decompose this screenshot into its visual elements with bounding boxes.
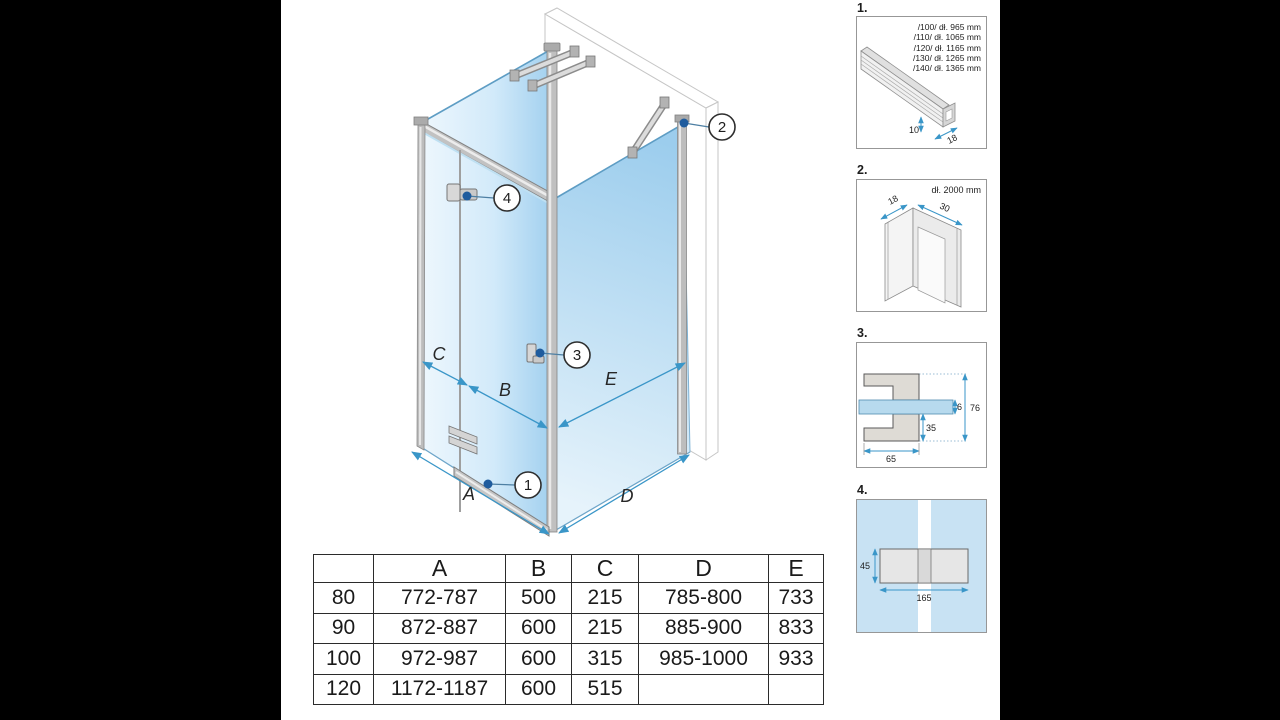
table-cell: 215 — [572, 613, 639, 644]
table-cell: 215 — [572, 583, 639, 614]
length-option: /140/ dł. 1365 mm — [913, 63, 981, 73]
table-cell — [639, 674, 769, 705]
table-row: 90872-887600215885-900833 — [314, 613, 824, 644]
table-cell: 772-787 — [374, 583, 506, 614]
detail-2-dim-b: 30 — [938, 201, 951, 214]
detail-4-dim-height: 45 — [860, 561, 870, 571]
table-cell: 972-987 — [374, 644, 506, 675]
detail-4-box: 45 165 — [856, 499, 987, 633]
table-cell: 985-1000 — [639, 644, 769, 675]
detail-1-length-list: /100/ dł. 965 mm /110/ dł. 1065 mm /120/… — [913, 22, 981, 73]
clamp-cross-section — [859, 374, 967, 441]
dim-label-d: D — [621, 486, 634, 506]
size-table-col-header: B — [506, 555, 572, 583]
detail-2-dim-a: 18 — [886, 193, 900, 207]
corner-wall-profile — [885, 208, 961, 307]
detail-2-drawing: 18 30 — [857, 180, 986, 311]
size-table-header: ABCDE — [314, 555, 824, 583]
table-cell: 1172-1187 — [374, 674, 506, 705]
detail-2-box: 18 30 dł. 2000 mm — [856, 179, 987, 312]
callout-4-number: 4 — [503, 190, 511, 207]
table-row: 100972-987600315985-1000933 — [314, 644, 824, 675]
table-cell: 600 — [506, 613, 572, 644]
callout-3-number: 3 — [573, 347, 581, 364]
callout-1-number: 1 — [524, 477, 532, 494]
table-cell: 515 — [572, 674, 639, 705]
size-table-col-header: C — [572, 555, 639, 583]
dim-label-a: A — [462, 484, 475, 504]
detail-4-dim-width: 165 — [916, 593, 931, 603]
table-cell: 833 — [769, 613, 824, 644]
size-table-col-header: D — [639, 555, 769, 583]
table-cell: 885-900 — [639, 613, 769, 644]
detail-3-box: 6 76 35 65 — [856, 342, 987, 468]
size-table-col-header — [314, 555, 374, 583]
size-table: ABCDE 80772-787500215785-80073390872-887… — [313, 554, 824, 705]
table-cell: 100 — [314, 644, 374, 675]
length-option: /110/ dł. 1065 mm — [913, 32, 981, 42]
detail-1-box: 10 18 /100/ dł. 965 mm /110/ dł. 1065 mm… — [856, 16, 987, 149]
table-cell: 500 — [506, 583, 572, 614]
detail-3-dim-lower: 35 — [926, 423, 936, 433]
hinge-face-view — [880, 549, 968, 583]
front-left-glass-panel — [421, 50, 552, 530]
table-cell: 600 — [506, 644, 572, 675]
detail-3-dim-total: 76 — [970, 403, 980, 413]
table-cell: 733 — [769, 583, 824, 614]
table-cell: 120 — [314, 674, 374, 705]
table-cell: 600 — [506, 674, 572, 705]
detail-1-label: 1. — [857, 1, 867, 15]
size-table-col-header: E — [769, 555, 824, 583]
length-option: /130/ dł. 1265 mm — [913, 53, 981, 63]
table-cell: 80 — [314, 583, 374, 614]
detail-2-label: 2. — [857, 163, 867, 177]
detail-4-drawing: 45 165 — [857, 500, 986, 632]
length-option: /120/ dł. 1165 mm — [913, 43, 981, 53]
size-table-col-header: A — [374, 555, 506, 583]
detail-1-dim-height: 10 — [909, 125, 919, 135]
detail-1-dim-depth: 18 — [945, 132, 958, 145]
table-cell: 933 — [769, 644, 824, 675]
length-option: /100/ dł. 965 mm — [913, 22, 981, 32]
table-cell: 315 — [572, 644, 639, 675]
detail-4-label: 4. — [857, 483, 867, 497]
detail-2-length: dł. 2000 mm — [931, 185, 981, 195]
table-cell — [769, 674, 824, 705]
detail-3-dim-width: 65 — [886, 454, 896, 464]
table-cell: 90 — [314, 613, 374, 644]
diagram-sheet: C B E A D 1 2 3 — [281, 0, 1000, 720]
dim-label-c: C — [433, 344, 447, 364]
table-row: 1201172-1187600515 — [314, 674, 824, 705]
table-cell: 872-887 — [374, 613, 506, 644]
dim-label-b: B — [499, 380, 511, 400]
size-table-body: 80772-787500215785-80073390872-887600215… — [314, 583, 824, 705]
table-cell: 785-800 — [639, 583, 769, 614]
detail-3-dim-glass: 6 — [957, 402, 962, 412]
detail-3-drawing: 6 76 35 65 — [857, 343, 986, 467]
table-row: 80772-787500215785-800733 — [314, 583, 824, 614]
callout-2-number: 2 — [718, 119, 726, 136]
dim-label-e: E — [605, 369, 618, 389]
detail-3-label: 3. — [857, 326, 867, 340]
glass-pane-section — [859, 400, 953, 414]
